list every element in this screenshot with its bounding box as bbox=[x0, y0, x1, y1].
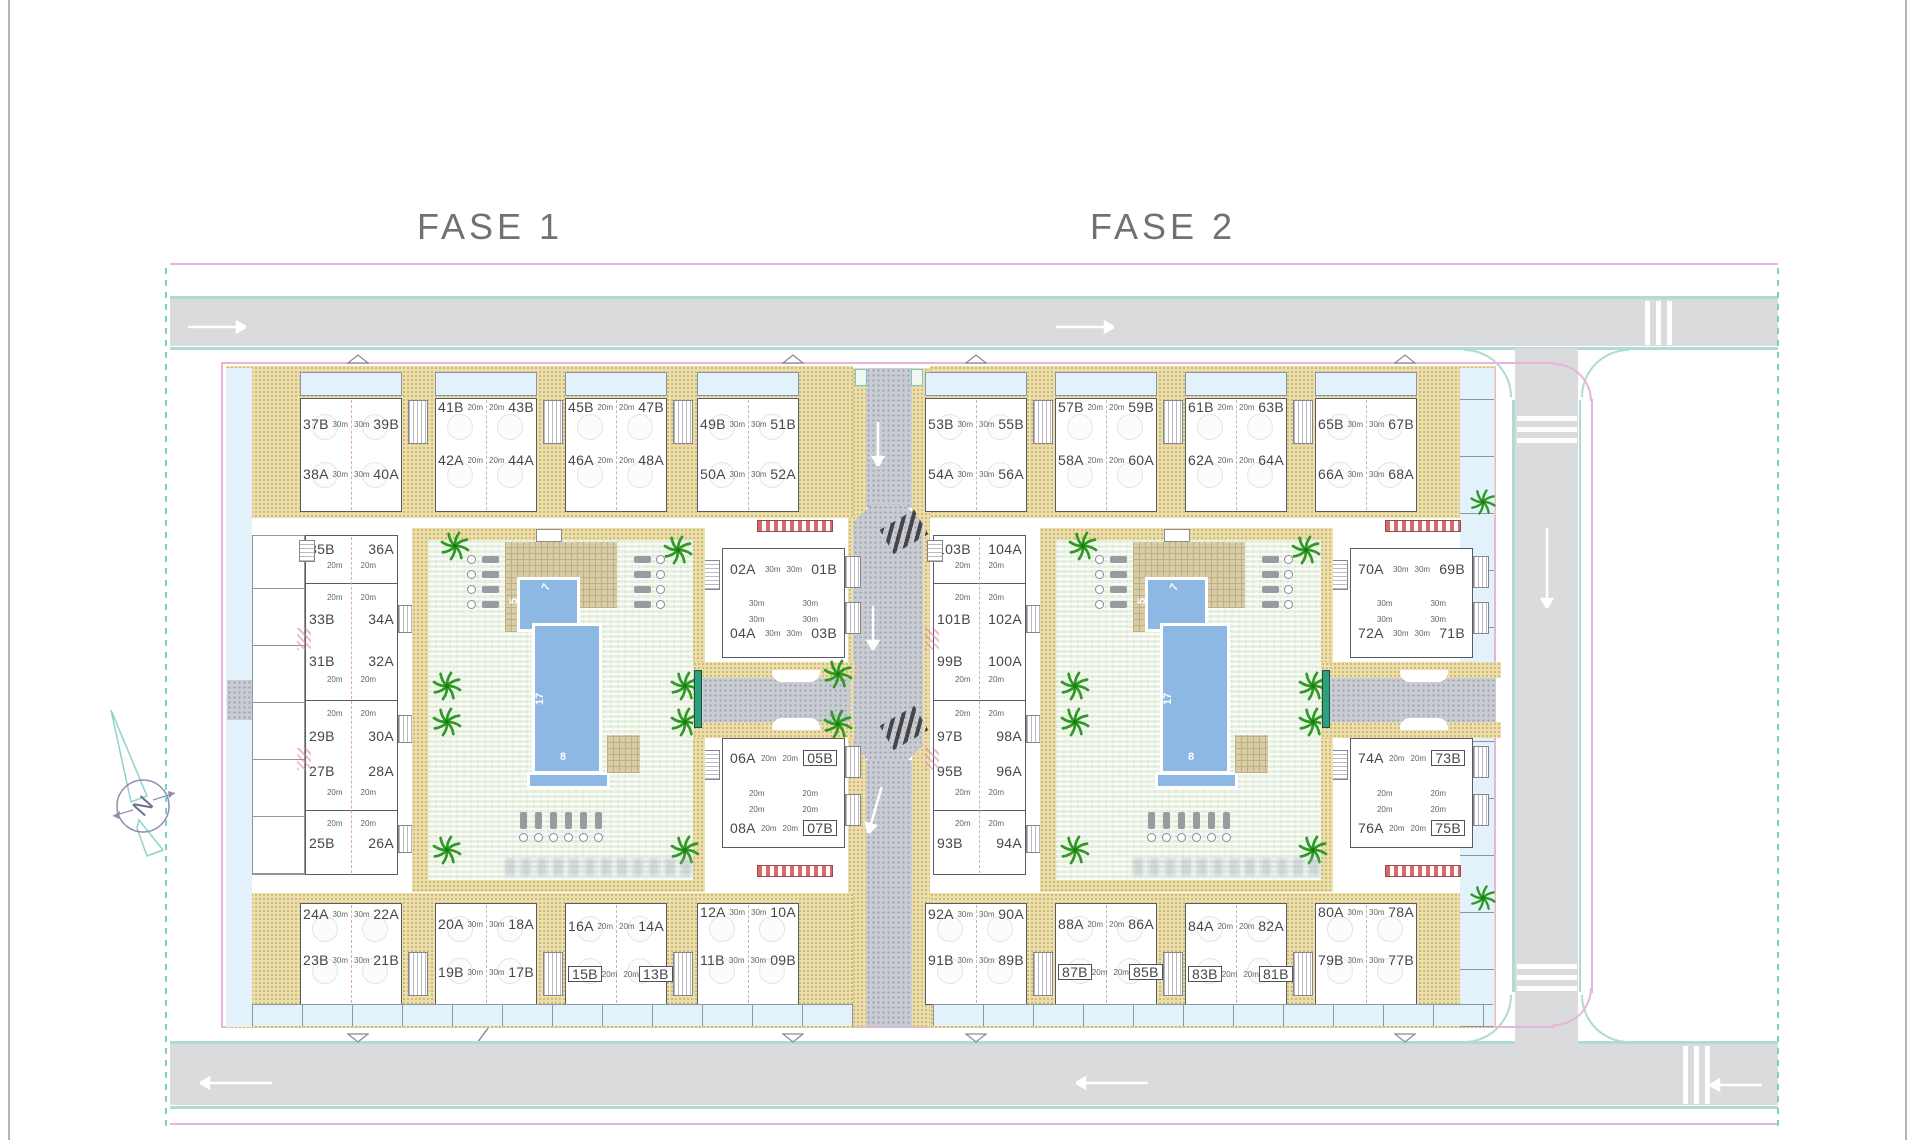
pool-dim-width: 8 bbox=[560, 751, 574, 765]
sun-lounger bbox=[535, 812, 542, 829]
planter-icon bbox=[1284, 600, 1293, 609]
size-label: 20m bbox=[623, 970, 639, 979]
size-pair: 30m30m bbox=[765, 565, 802, 574]
size-row: 30m30m bbox=[1358, 614, 1465, 624]
size-label: 20m bbox=[761, 754, 777, 763]
north-arrow-compass: N bbox=[95, 700, 195, 860]
size-label: 30m bbox=[489, 920, 505, 929]
unit-pair-row: 62A20m20m64A bbox=[1188, 452, 1284, 468]
size-pair: 20m20m bbox=[467, 403, 504, 412]
size-pair: 30m30m bbox=[1393, 629, 1430, 638]
canopy-stripe bbox=[1385, 520, 1461, 532]
size-label: 20m bbox=[1087, 456, 1103, 465]
size-label: 30m bbox=[751, 470, 767, 479]
south-boundary-line bbox=[170, 1123, 1778, 1125]
planter-icon bbox=[1284, 585, 1293, 594]
size-label: 20m bbox=[467, 403, 483, 412]
pink-arc bbox=[1553, 988, 1592, 1026]
unit-pair-row: 50A30m30m52A bbox=[700, 466, 796, 482]
compass-needle bbox=[111, 710, 147, 802]
size-label: 20m bbox=[955, 675, 971, 684]
south-patio-strip bbox=[252, 1004, 853, 1026]
unit-label: 100A bbox=[988, 654, 1022, 669]
size-label: 30m bbox=[1369, 470, 1385, 479]
planter-icon bbox=[1147, 833, 1156, 842]
porch bbox=[927, 540, 943, 562]
north-patio bbox=[1055, 372, 1157, 396]
stair-icon bbox=[1473, 556, 1489, 588]
crosswalk bbox=[1683, 1046, 1713, 1104]
survey-mark bbox=[297, 748, 311, 770]
size-label: 20m bbox=[1239, 922, 1255, 931]
unit-label: 44A bbox=[508, 453, 534, 468]
site-edge-dashed bbox=[1777, 264, 1779, 1126]
unit-pair-row: 08A20m20m07B bbox=[730, 820, 837, 836]
sun-lounger bbox=[580, 812, 587, 829]
furniture-circle bbox=[497, 414, 523, 440]
pool-dim-length: 17 bbox=[534, 689, 548, 705]
entry-marker bbox=[965, 351, 987, 361]
size-label: 30m bbox=[354, 910, 370, 919]
palm-tree-icon bbox=[1468, 883, 1498, 913]
unit-pair-row: 91B30m30m89B bbox=[928, 952, 1024, 968]
size-label: 20m bbox=[1389, 824, 1405, 833]
size-label: 20m bbox=[327, 709, 343, 718]
unit-label: 29B bbox=[309, 729, 335, 744]
unit-pair-row: 41B20m20m43B bbox=[438, 399, 534, 415]
size-pair: 20m20m bbox=[761, 754, 798, 763]
planter-icon bbox=[1192, 833, 1201, 842]
size-label: 20m bbox=[783, 824, 799, 833]
size-pair: 20m20m bbox=[1217, 922, 1254, 931]
size-label: 20m bbox=[1411, 824, 1427, 833]
size-label: 30m bbox=[729, 420, 745, 429]
entrance-gate bbox=[911, 369, 923, 386]
size-label: 30m bbox=[749, 599, 765, 608]
pool-step bbox=[527, 772, 610, 789]
unit-pair-row: 24A30m30m22A bbox=[303, 906, 399, 922]
size-label: 30m bbox=[957, 910, 973, 919]
unit-pair-row: 88A20m20m86A bbox=[1058, 916, 1154, 932]
size-pair: 30m30m bbox=[957, 956, 994, 965]
north-road bbox=[170, 299, 1778, 346]
stair-icon bbox=[1293, 952, 1313, 996]
unit-label: 04A bbox=[730, 626, 756, 641]
size-label: 30m bbox=[1415, 565, 1431, 574]
size-label: 20m bbox=[361, 561, 377, 570]
size-label: 20m bbox=[361, 675, 377, 684]
size-label: 30m bbox=[1369, 908, 1385, 917]
south-patio-strip bbox=[933, 1004, 1493, 1026]
unit-label: 48A bbox=[638, 453, 664, 468]
size-label: 20m bbox=[761, 824, 777, 833]
size-label: 30m bbox=[1430, 599, 1446, 608]
unit-label: 69B bbox=[1439, 562, 1465, 577]
size-label: 30m bbox=[467, 968, 483, 977]
size-pair: 30m30m bbox=[729, 470, 766, 479]
size-label: 20m bbox=[1109, 456, 1125, 465]
size-label: 20m bbox=[1113, 968, 1129, 977]
central-road-arrow bbox=[871, 422, 885, 466]
phase2-title: FASE 2 bbox=[1058, 206, 1268, 246]
watermark bbox=[1133, 858, 1323, 876]
size-label: 30m bbox=[979, 420, 995, 429]
sun-lounger bbox=[634, 601, 651, 608]
size-row: 20m20m bbox=[937, 592, 1022, 602]
planter-icon bbox=[594, 833, 603, 842]
unit-label: 59B bbox=[1128, 400, 1154, 415]
planter-icon bbox=[519, 833, 528, 842]
sun-lounger bbox=[1110, 601, 1127, 608]
planter-icon bbox=[1177, 833, 1186, 842]
sun-lounger bbox=[1163, 812, 1170, 829]
size-label: 20m bbox=[489, 403, 505, 412]
size-row: 20m20m bbox=[309, 592, 394, 602]
stair-icon bbox=[673, 952, 693, 996]
unit-label: 02A bbox=[730, 562, 756, 577]
palm-tree-icon bbox=[1289, 533, 1323, 567]
unit-label: 90A bbox=[998, 907, 1024, 922]
unit-label: 36A bbox=[368, 542, 394, 557]
unit-label: 102A bbox=[988, 612, 1022, 627]
road-arrow-south bbox=[1540, 528, 1554, 608]
palm-tree-icon bbox=[1468, 487, 1498, 517]
site-boundary-left bbox=[221, 362, 223, 1028]
size-label: 30m bbox=[957, 420, 973, 429]
unit-label: 47B bbox=[638, 400, 664, 415]
size-label: 20m bbox=[1377, 805, 1393, 814]
unit-label: 32A bbox=[368, 654, 394, 669]
unit-pair-row: 31B32A bbox=[309, 653, 394, 669]
unit-pair-row: 83B20m20m81B bbox=[1188, 966, 1284, 982]
size-label: 20m bbox=[989, 675, 1005, 684]
unit-pair-row: 72A30m30m71B bbox=[1358, 625, 1465, 641]
unit-pair-row: 61B20m20m63B bbox=[1188, 399, 1284, 415]
unit-label: 07B bbox=[803, 820, 837, 837]
furniture-circle bbox=[577, 414, 603, 440]
hedge bbox=[694, 670, 702, 728]
size-label: 30m bbox=[802, 599, 818, 608]
size-label: 30m bbox=[1377, 615, 1393, 624]
hedge bbox=[1322, 670, 1330, 728]
unit-pair-row: 37B30m30m39B bbox=[303, 416, 399, 432]
unit-pair-row: 33B34A bbox=[309, 611, 394, 627]
size-pair: 20m20m bbox=[1087, 403, 1124, 412]
sun-lounger bbox=[1178, 812, 1185, 829]
sun-lounger bbox=[482, 586, 499, 593]
unit-label: 40A bbox=[373, 467, 399, 482]
planter-icon bbox=[534, 833, 543, 842]
unit-pair-row: 79B30m30m77B bbox=[1318, 952, 1414, 968]
unit-label: 53B bbox=[928, 417, 954, 432]
unit-label: 64A bbox=[1258, 453, 1284, 468]
unit-label: 58A bbox=[1058, 453, 1084, 468]
unit-pair-row: 16A20m20m14A bbox=[568, 918, 664, 934]
size-label: 20m bbox=[955, 709, 971, 718]
size-label: 20m bbox=[1109, 920, 1125, 929]
size-pair: 20m20m bbox=[602, 970, 639, 979]
stair-icon bbox=[408, 952, 428, 996]
sun-lounger bbox=[550, 812, 557, 829]
unit-label: 05B bbox=[803, 750, 837, 767]
path-flare bbox=[1400, 718, 1448, 730]
unit-label: 30A bbox=[368, 729, 394, 744]
unit-pair-row: 99B100A bbox=[937, 653, 1022, 669]
size-label: 30m bbox=[332, 470, 348, 479]
unit-pair-row: 11B30m30m09B bbox=[700, 952, 796, 968]
size-label: 20m bbox=[602, 970, 618, 979]
size-row: 30m30m bbox=[730, 614, 837, 624]
unit-label: 68A bbox=[1388, 467, 1414, 482]
unit-pair-row: 19B30m30m17B bbox=[438, 964, 534, 980]
unit-label: 27B bbox=[309, 764, 335, 779]
size-label: 20m bbox=[619, 922, 635, 931]
watermark bbox=[505, 858, 695, 876]
survey-mark bbox=[925, 748, 939, 770]
unit-label: 17B bbox=[508, 965, 534, 980]
size-pair: 30m30m bbox=[729, 956, 766, 965]
unit-pair-row: 06A20m20m05B bbox=[730, 750, 837, 766]
unit-label: 10A bbox=[770, 905, 796, 920]
unit-label: 14A bbox=[638, 919, 664, 934]
stair-icon bbox=[1473, 794, 1489, 826]
unit-label: 88A bbox=[1058, 917, 1084, 932]
size-label: 30m bbox=[979, 470, 995, 479]
unit-label: 42A bbox=[438, 453, 464, 468]
unit-label: 41B bbox=[438, 400, 464, 415]
planter-icon bbox=[467, 585, 476, 594]
unit-label: 49B bbox=[700, 417, 726, 432]
palm-tree-icon bbox=[430, 705, 464, 739]
size-label: 30m bbox=[979, 910, 995, 919]
unit-label: 98A bbox=[996, 729, 1022, 744]
stair-icon bbox=[704, 750, 720, 780]
sun-lounger bbox=[1262, 601, 1279, 608]
unit-pair-row: 04A30m30m03B bbox=[730, 625, 837, 641]
unit-label: 71B bbox=[1439, 626, 1465, 641]
unit-pair-row: 42A20m20m44A bbox=[438, 452, 534, 468]
unit-pair-row: 97B98A bbox=[937, 728, 1022, 744]
unit-label: 89B bbox=[998, 953, 1024, 968]
sun-lounger bbox=[1262, 571, 1279, 578]
unit-label: 80A bbox=[1318, 905, 1344, 920]
entry-marker bbox=[965, 1030, 987, 1040]
size-label: 20m bbox=[989, 709, 1005, 718]
size-label: 20m bbox=[361, 709, 377, 718]
planter-icon bbox=[656, 600, 665, 609]
crosswalk bbox=[1517, 960, 1577, 991]
unit-label: 20A bbox=[438, 917, 464, 932]
planter-icon bbox=[467, 600, 476, 609]
size-label: 30m bbox=[1369, 956, 1385, 965]
unit-label: 94A bbox=[996, 836, 1022, 851]
entry-marker bbox=[782, 1030, 804, 1040]
canopy-stripe bbox=[757, 865, 833, 877]
unit-label: 22A bbox=[373, 907, 399, 922]
size-pair: 30m30m bbox=[729, 908, 766, 917]
size-label: 20m bbox=[783, 754, 799, 763]
unit-label: 18A bbox=[508, 917, 534, 932]
porch bbox=[299, 540, 315, 562]
unit-label: 83B bbox=[1188, 966, 1222, 983]
unit-label: 09B bbox=[770, 953, 796, 968]
palm-tree-icon bbox=[1066, 529, 1100, 563]
path-flare bbox=[772, 718, 820, 730]
size-label: 30m bbox=[332, 420, 348, 429]
north-boundary-line bbox=[170, 263, 1778, 265]
size-pair: 20m20m bbox=[467, 456, 504, 465]
size-label: 30m bbox=[1347, 420, 1363, 429]
size-pair: 20m20m bbox=[1389, 754, 1426, 763]
stair-icon bbox=[1473, 746, 1489, 778]
unit-label: 34A bbox=[368, 612, 394, 627]
stair-icon bbox=[1473, 602, 1489, 634]
size-label: 20m bbox=[1217, 403, 1233, 412]
size-label: 20m bbox=[749, 805, 765, 814]
canopy-stripe bbox=[1385, 865, 1461, 877]
size-label: 20m bbox=[1430, 805, 1446, 814]
planter-icon bbox=[1095, 585, 1104, 594]
unit-label: 33B bbox=[309, 612, 335, 627]
unit-pair-row: 46A20m20m48A bbox=[568, 452, 664, 468]
unit-pair-row: 95B96A bbox=[937, 763, 1022, 779]
unit-label: 31B bbox=[309, 654, 335, 669]
size-label: 30m bbox=[751, 908, 767, 917]
sun-lounger bbox=[520, 812, 527, 829]
size-label: 30m bbox=[489, 968, 505, 977]
planter-icon bbox=[656, 570, 665, 579]
unit-pair-row: 103B104A bbox=[937, 541, 1022, 557]
unit-label: 96A bbox=[996, 764, 1022, 779]
stair-icon bbox=[1163, 400, 1183, 444]
size-row: 20m20m bbox=[1358, 804, 1465, 814]
sidewalk-edge bbox=[170, 296, 1778, 299]
size-label: 30m bbox=[354, 420, 370, 429]
size-label: 20m bbox=[1239, 456, 1255, 465]
furniture-circle bbox=[627, 414, 653, 440]
size-pair: 20m20m bbox=[1087, 456, 1124, 465]
size-label: 30m bbox=[729, 956, 745, 965]
size-label: 20m bbox=[361, 819, 377, 828]
unit-label: 99B bbox=[937, 654, 963, 669]
west-gate-path bbox=[227, 680, 252, 720]
unit-label: 75B bbox=[1431, 820, 1465, 837]
size-label: 20m bbox=[327, 675, 343, 684]
unit-label: 37B bbox=[303, 417, 329, 432]
size-label: 20m bbox=[1109, 403, 1125, 412]
deck-square bbox=[1235, 735, 1268, 773]
entry-marker bbox=[347, 351, 369, 361]
stair-icon bbox=[543, 952, 563, 996]
size-label: 20m bbox=[597, 403, 613, 412]
entrance-path bbox=[1326, 678, 1496, 722]
size-pair: 30m30m bbox=[1347, 956, 1384, 965]
east-road bbox=[1515, 348, 1578, 1044]
north-patio bbox=[697, 372, 799, 396]
unit-label: 91B bbox=[928, 953, 954, 968]
unit-label: 01B bbox=[811, 562, 837, 577]
unit-pair-row: 02A30m30m01B bbox=[730, 561, 837, 577]
sidewalk-edge bbox=[170, 1106, 1778, 1109]
size-label: 20m bbox=[955, 819, 971, 828]
size-pair: 30m30m bbox=[1347, 908, 1384, 917]
unit-pair-row: 65B30m30m67B bbox=[1318, 416, 1414, 432]
unit-label: 08A bbox=[730, 821, 756, 836]
size-label: 20m bbox=[467, 456, 483, 465]
unit-label: 78A bbox=[1388, 905, 1414, 920]
site-boundary-top bbox=[222, 362, 1555, 364]
page-border-left bbox=[8, 0, 10, 1140]
unit-pair-row: 12A30m30m10A bbox=[700, 904, 796, 920]
page-border-right bbox=[1905, 0, 1907, 1140]
size-label: 30m bbox=[787, 565, 803, 574]
unit-label: 95B bbox=[937, 764, 963, 779]
size-label: 20m bbox=[749, 789, 765, 798]
sun-lounger bbox=[482, 571, 499, 578]
unit-pair-row: 76A20m20m75B bbox=[1358, 820, 1465, 836]
size-row: 20m20m bbox=[730, 788, 837, 798]
stair-icon bbox=[845, 794, 861, 826]
size-pair: 20m20m bbox=[1087, 920, 1124, 929]
size-pair: 20m20m bbox=[1222, 970, 1259, 979]
north-patio bbox=[565, 372, 667, 396]
size-label: 30m bbox=[1377, 599, 1393, 608]
unit-pair-row: 35B36A bbox=[309, 541, 394, 557]
size-row: 30m30m bbox=[1358, 598, 1465, 608]
stair-icon bbox=[408, 400, 428, 444]
unit-pair-row: 87B20m20m85B bbox=[1058, 964, 1154, 980]
crosswalk bbox=[1517, 412, 1577, 443]
size-label: 20m bbox=[1389, 754, 1405, 763]
size-label: 20m bbox=[1087, 920, 1103, 929]
size-row: 30m30m bbox=[730, 598, 837, 608]
size-row: 20m20m bbox=[937, 818, 1022, 828]
size-label: 20m bbox=[1092, 968, 1108, 977]
unit-label: 24A bbox=[303, 907, 329, 922]
stair-icon bbox=[673, 400, 693, 444]
size-label: 30m bbox=[467, 920, 483, 929]
unit-label: 38A bbox=[303, 467, 329, 482]
unit-label: 85B bbox=[1129, 964, 1163, 981]
palm-tree-icon bbox=[1058, 669, 1092, 703]
size-row: 20m20m bbox=[937, 560, 1022, 570]
sun-lounger bbox=[1110, 586, 1127, 593]
size-pair: 20m20m bbox=[1389, 824, 1426, 833]
size-label: 30m bbox=[1347, 470, 1363, 479]
north-patio bbox=[1315, 372, 1417, 396]
survey-mark bbox=[297, 628, 311, 650]
road-arrow-west bbox=[1710, 1078, 1762, 1092]
size-pair: 30m30m bbox=[332, 910, 369, 919]
unit-pair-row: 92A30m30m90A bbox=[928, 906, 1024, 922]
unit-label: 97B bbox=[937, 729, 963, 744]
unit-label: 39B bbox=[373, 417, 399, 432]
size-label: 20m bbox=[955, 561, 971, 570]
size-label: 30m bbox=[1393, 629, 1409, 638]
size-row: 20m20m bbox=[937, 708, 1022, 718]
unit-label: 65B bbox=[1318, 417, 1344, 432]
size-pair: 20m20m bbox=[597, 403, 634, 412]
south-road bbox=[170, 1044, 1778, 1105]
planter-icon bbox=[1095, 570, 1104, 579]
size-label: 20m bbox=[1239, 403, 1255, 412]
size-label: 30m bbox=[750, 956, 766, 965]
planter-icon bbox=[467, 570, 476, 579]
unit-label: 54A bbox=[928, 467, 954, 482]
entry-marker bbox=[782, 351, 804, 361]
size-label: 20m bbox=[989, 788, 1005, 797]
north-patio bbox=[300, 372, 402, 396]
